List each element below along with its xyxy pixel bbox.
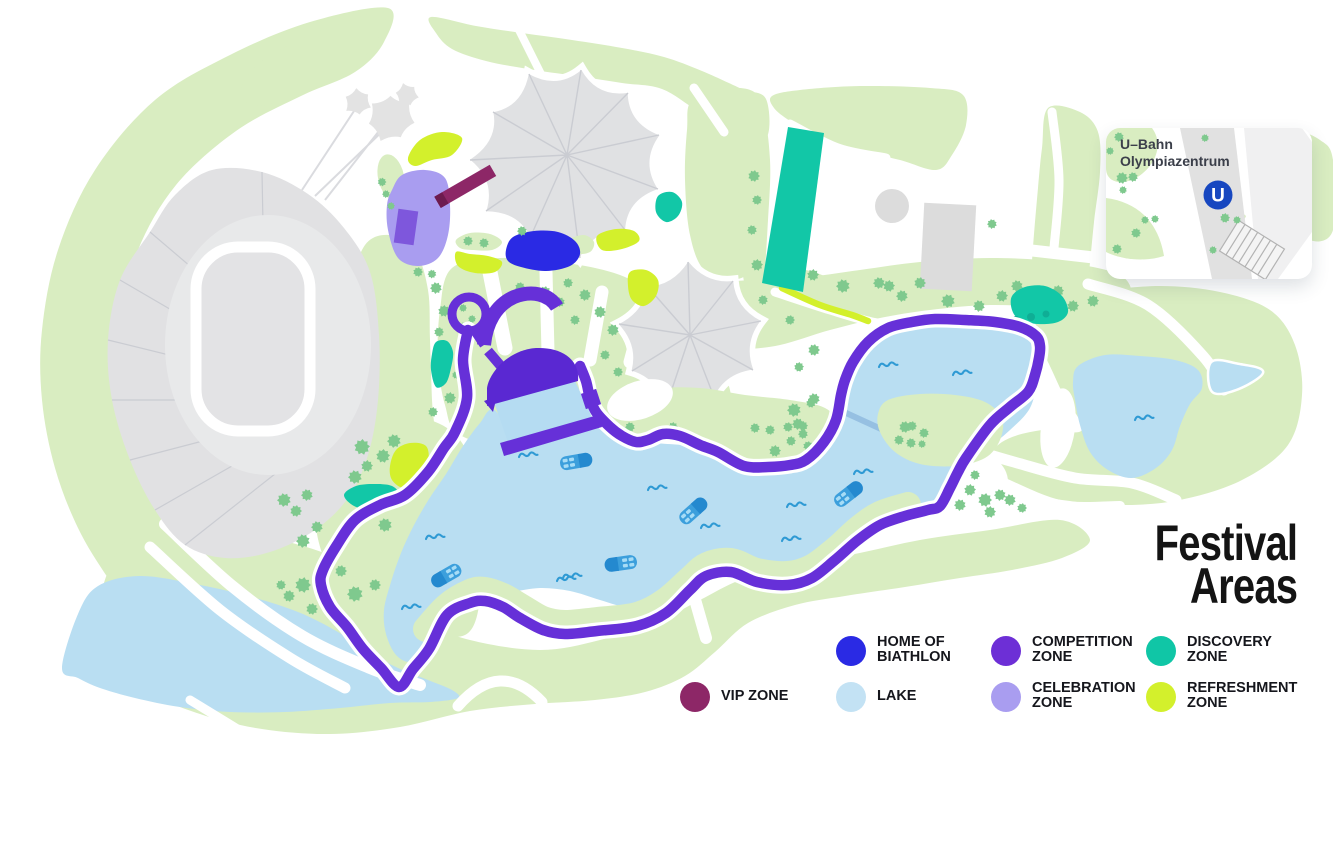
svg-text:U: U xyxy=(1211,186,1225,207)
